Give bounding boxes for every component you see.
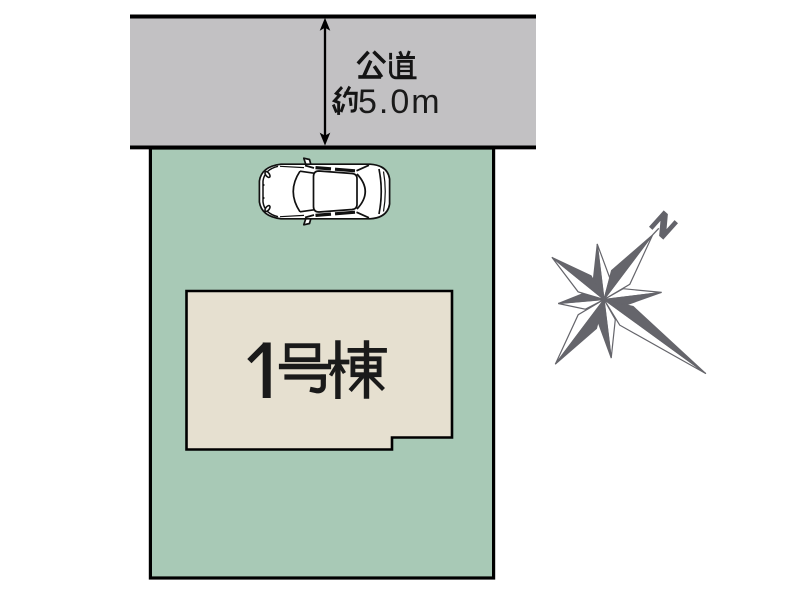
svg-text:5.0m: 5.0m	[358, 83, 442, 121]
